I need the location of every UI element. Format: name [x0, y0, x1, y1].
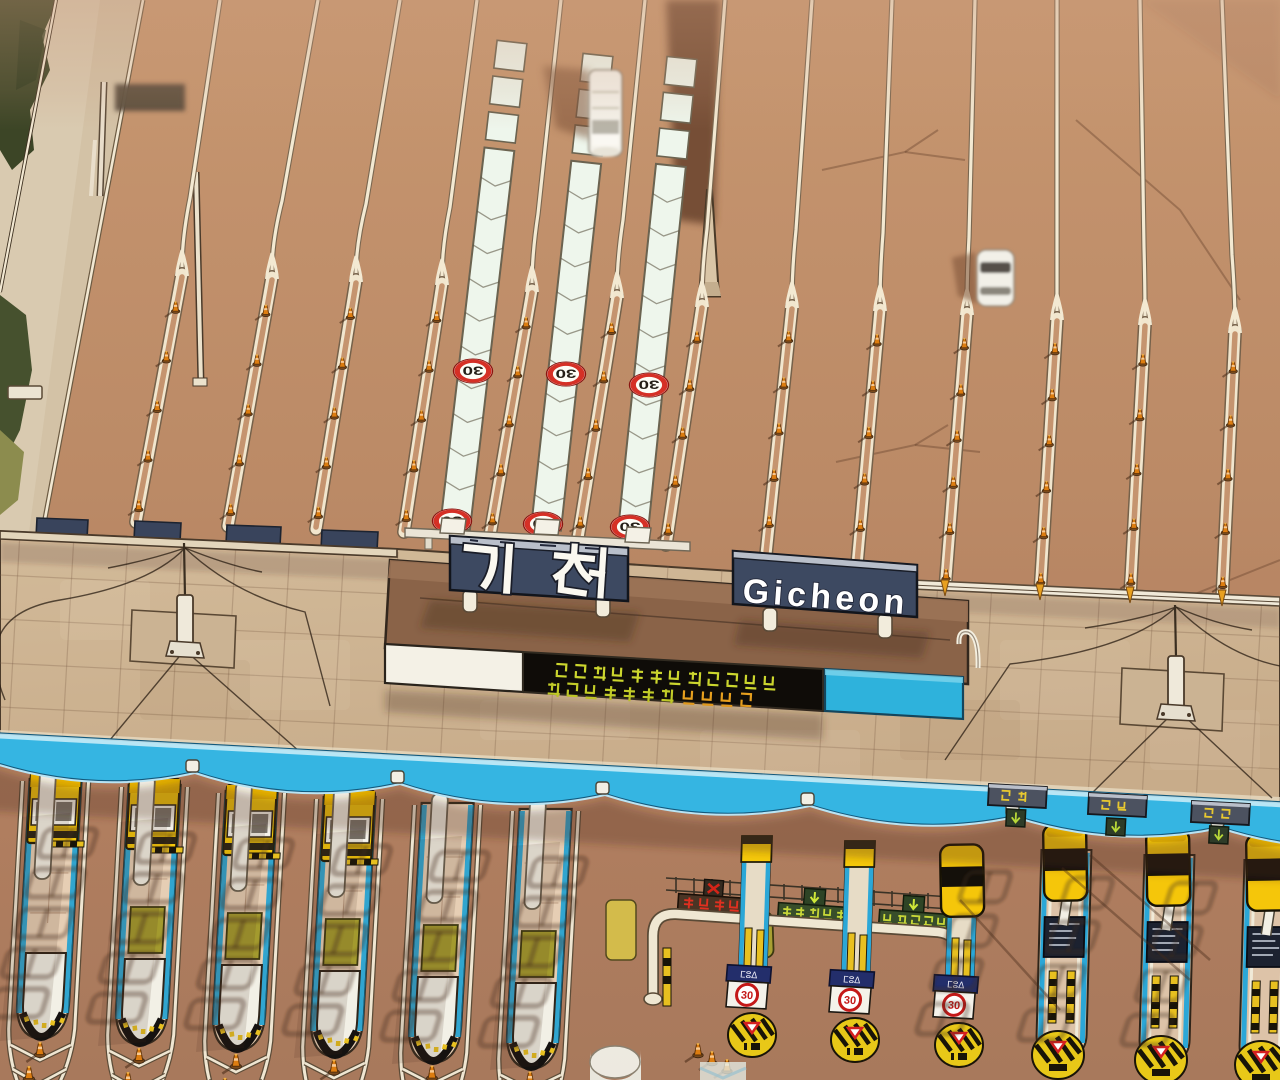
svg-text:30: 30	[462, 363, 483, 376]
svg-text:ⵎⵓⵠ: ⵎⵓⵠ	[843, 974, 862, 985]
svg-text:30: 30	[555, 366, 576, 379]
svg-text:30: 30	[740, 990, 753, 1003]
svg-text:30: 30	[638, 377, 659, 390]
svg-text:30: 30	[843, 995, 856, 1008]
svg-text:ⵎⵓⵠ: ⵎⵓⵠ	[740, 969, 759, 980]
